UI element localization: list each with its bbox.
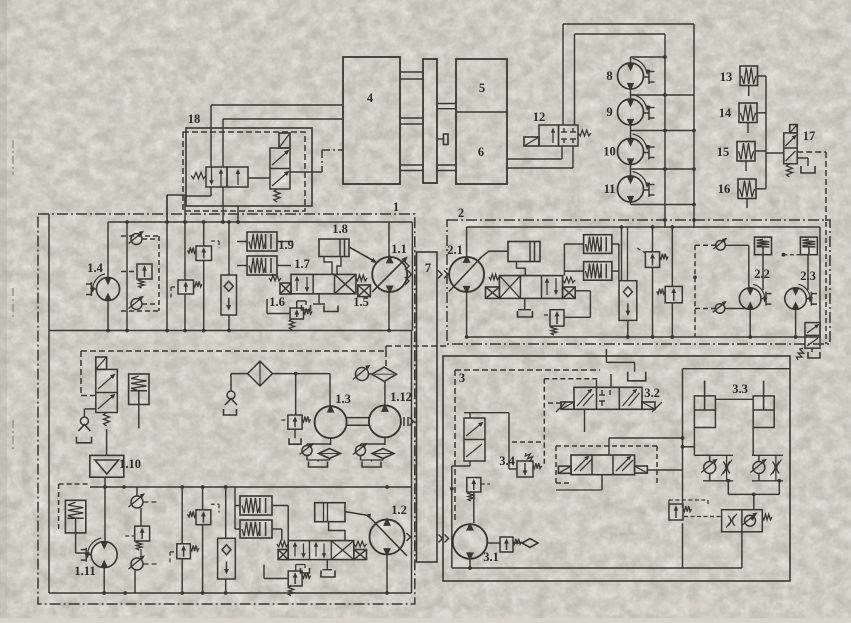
svg-text:15: 15 <box>717 145 730 159</box>
svg-text:10: 10 <box>603 145 616 159</box>
svg-text:1.9: 1.9 <box>278 238 294 252</box>
svg-text:11: 11 <box>604 182 616 196</box>
svg-text:4: 4 <box>367 91 374 105</box>
svg-text:16: 16 <box>718 182 731 196</box>
svg-text:3.1: 3.1 <box>483 550 499 564</box>
svg-text:1.8: 1.8 <box>332 222 348 236</box>
svg-text:3.3: 3.3 <box>732 382 748 396</box>
svg-text:1.11: 1.11 <box>74 564 95 578</box>
svg-text:1.7: 1.7 <box>294 257 310 271</box>
svg-text:1.4: 1.4 <box>87 261 103 275</box>
svg-text:14: 14 <box>719 106 732 120</box>
svg-text:2.1: 2.1 <box>447 243 463 257</box>
svg-text:2.2: 2.2 <box>754 267 770 281</box>
svg-text:2: 2 <box>458 206 464 220</box>
svg-text:5: 5 <box>479 81 485 95</box>
svg-text:12: 12 <box>533 110 546 124</box>
svg-text:2.3: 2.3 <box>800 269 816 283</box>
svg-text:3.2: 3.2 <box>644 386 660 400</box>
svg-text:7: 7 <box>425 261 431 275</box>
svg-text:9: 9 <box>606 105 612 119</box>
svg-text:1.2: 1.2 <box>391 503 407 517</box>
svg-text:17: 17 <box>803 129 816 143</box>
svg-text:1.12: 1.12 <box>390 390 412 404</box>
svg-text:1.10: 1.10 <box>119 457 141 471</box>
svg-text:18: 18 <box>188 112 201 126</box>
svg-text:1: 1 <box>393 200 399 214</box>
svg-text:8: 8 <box>606 69 612 83</box>
svg-text:6: 6 <box>478 145 484 159</box>
svg-text:1.1: 1.1 <box>391 242 407 256</box>
svg-text:1.6: 1.6 <box>269 295 285 309</box>
svg-text:1.5: 1.5 <box>353 295 369 309</box>
svg-text:3.4: 3.4 <box>499 454 515 468</box>
svg-text:13: 13 <box>720 70 733 84</box>
svg-text:3: 3 <box>459 371 465 385</box>
svg-text:1.3: 1.3 <box>335 392 351 406</box>
